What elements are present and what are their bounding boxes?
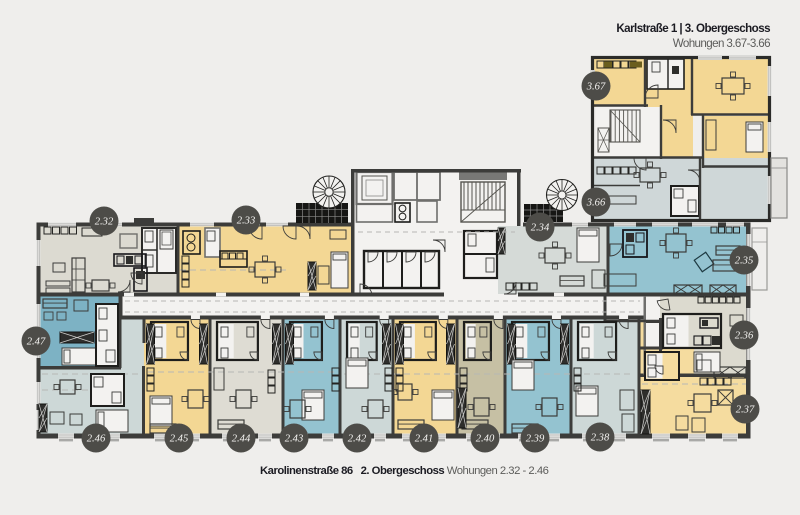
svg-text:2.39: 2.39 — [526, 434, 545, 445]
svg-text:2.44: 2.44 — [232, 434, 251, 445]
svg-text:2.42: 2.42 — [348, 434, 367, 445]
svg-text:2.45: 2.45 — [170, 434, 189, 445]
svg-text:2.47: 2.47 — [27, 337, 46, 348]
svg-text:Wohungen 3.67-3.66: Wohungen 3.67-3.66 — [673, 37, 770, 50]
svg-text:Karlstraße 1 | 3. Obergeschoss: Karlstraße 1 | 3. Obergeschoss — [616, 22, 770, 35]
svg-text:2.33: 2.33 — [237, 216, 256, 227]
svg-text:2.35: 2.35 — [735, 256, 754, 267]
svg-text:2.43: 2.43 — [285, 434, 304, 445]
svg-text:2.32: 2.32 — [95, 217, 114, 228]
svg-text:2.41: 2.41 — [415, 434, 434, 445]
svg-text:Karolinenstraße 86 2. Oberge: Karolinenstraße 86 2. Obergeschoss Wohun… — [260, 465, 549, 477]
svg-text:2.40: 2.40 — [476, 434, 495, 445]
svg-text:3.67: 3.67 — [586, 82, 606, 93]
svg-text:2.46: 2.46 — [87, 434, 106, 445]
svg-text:3.66: 3.66 — [586, 198, 606, 209]
svg-text:2.37: 2.37 — [736, 405, 755, 416]
svg-text:2.36: 2.36 — [735, 331, 754, 342]
svg-text:2.34: 2.34 — [531, 223, 550, 234]
svg-text:2.38: 2.38 — [591, 433, 610, 444]
